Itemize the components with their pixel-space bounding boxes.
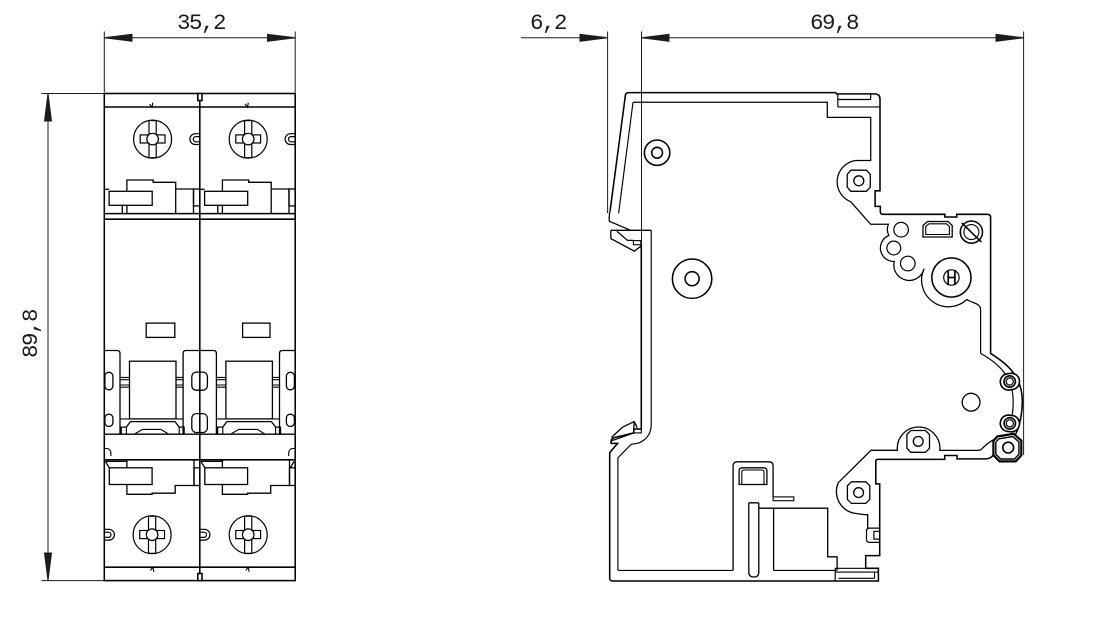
svg-text:35,2: 35,2 <box>177 10 225 36</box>
svg-text:6,2: 6,2 <box>530 10 566 36</box>
svg-text:69,8: 69,8 <box>810 10 859 36</box>
svg-text:89,8: 89,8 <box>18 309 44 358</box>
